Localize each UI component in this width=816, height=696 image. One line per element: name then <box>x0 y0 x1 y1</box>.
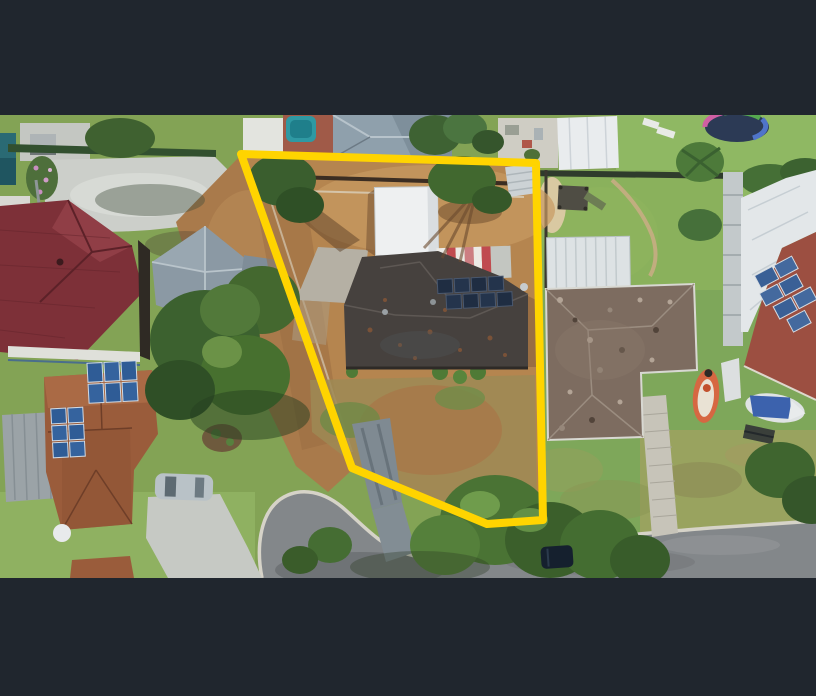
silver-car <box>155 473 214 501</box>
aerial-photo <box>0 115 816 578</box>
clothesline <box>520 283 528 291</box>
letterbox-bottom: J L PROPERTY <box>0 578 816 696</box>
roof-vent <box>57 259 64 266</box>
dark-car-street <box>540 545 573 569</box>
side-fence-dark <box>138 240 150 360</box>
white-roof-top <box>557 116 619 170</box>
screenshot: J L PROPERTY <box>0 0 816 696</box>
grey-fence-strip <box>723 172 743 346</box>
white-shed <box>374 186 438 255</box>
roof-vent <box>382 309 388 315</box>
letterbox-top <box>0 0 816 115</box>
long-white-shed <box>547 236 631 289</box>
satellite-dish <box>53 524 71 542</box>
